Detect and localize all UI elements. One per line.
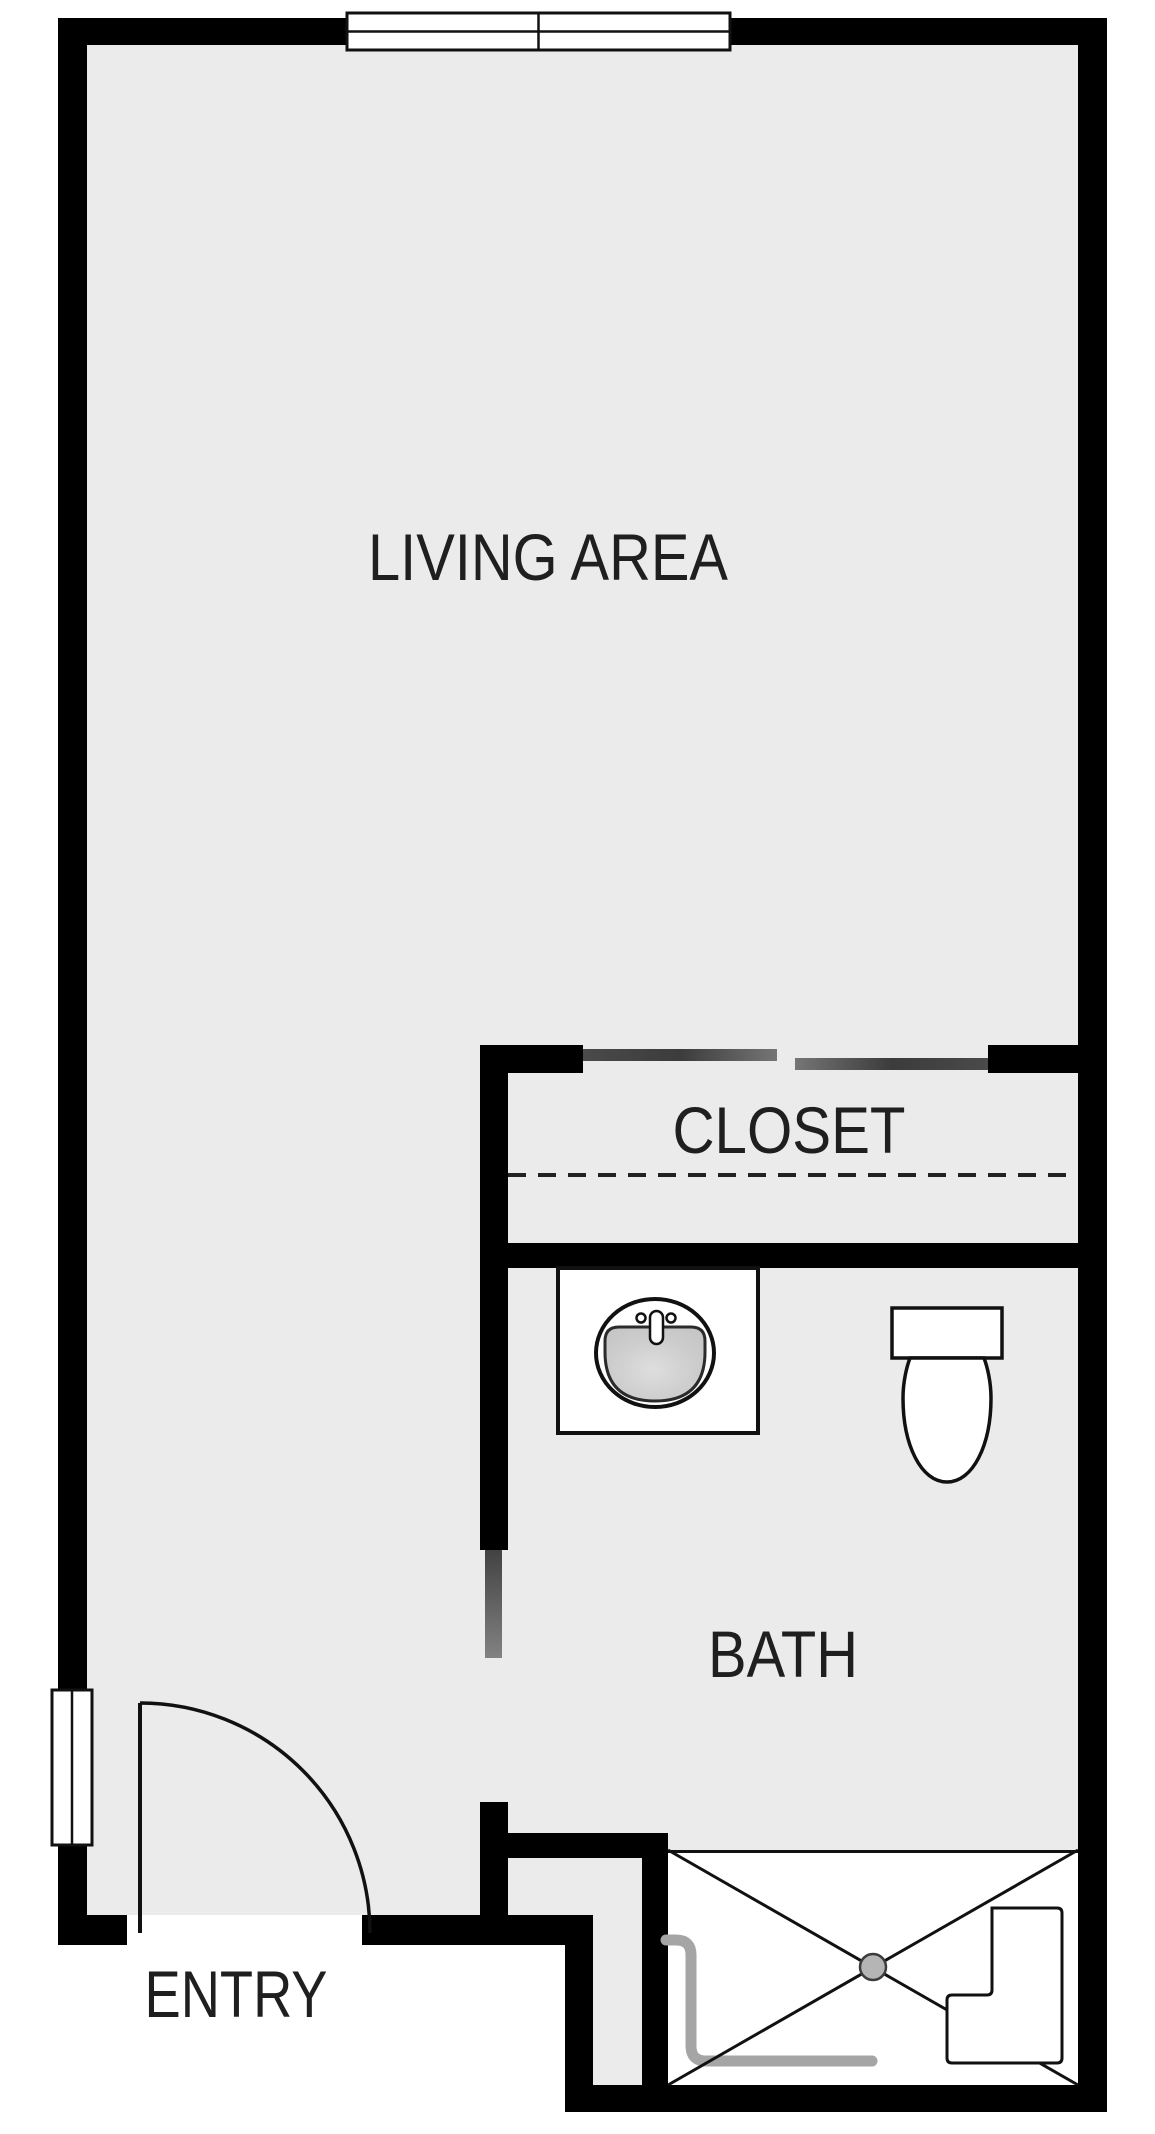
- wall-entry-right: [362, 1915, 593, 1945]
- wall-right: [1078, 18, 1107, 2112]
- shower: [666, 1850, 1078, 2085]
- living-area-label: LIVING AREA: [368, 520, 728, 594]
- sink-handle-right: [667, 1314, 676, 1323]
- entry-label: ENTRY: [145, 1957, 328, 2031]
- wall-closet-top-left: [480, 1045, 583, 1073]
- floor-plan-page: LIVING AREA CLOSET BATH ENTRY: [0, 0, 1155, 2134]
- wall-entry-left: [58, 1915, 127, 1945]
- sink-handle-left: [637, 1314, 646, 1323]
- closet-sliding-door-1: [583, 1049, 777, 1061]
- wall-closet-west: [480, 1045, 508, 1550]
- wall-bath-west-lower: [480, 1802, 508, 1943]
- wall-shower-north: [508, 1833, 668, 1858]
- floor-plan: LIVING AREA CLOSET BATH ENTRY: [0, 0, 1155, 2134]
- wall-shower-west: [642, 1858, 668, 2110]
- window-left: [52, 1690, 92, 1845]
- entry-door-opening: [127, 1915, 362, 1945]
- bath-label: BATH: [708, 1617, 858, 1691]
- wall-closet-bottom: [508, 1243, 1078, 1268]
- wall-closet-top-right: [988, 1045, 1080, 1073]
- wall-left: [58, 18, 87, 1945]
- sink-faucet: [650, 1311, 663, 1344]
- shower-drain: [860, 1954, 886, 1980]
- sink-vanity: [558, 1268, 758, 1433]
- closet-sliding-door-2: [795, 1058, 988, 1070]
- bath-opening-marker: [485, 1550, 502, 1658]
- window-top: [347, 13, 730, 50]
- toilet-tank: [892, 1308, 1002, 1358]
- closet-label: CLOSET: [673, 1093, 906, 1167]
